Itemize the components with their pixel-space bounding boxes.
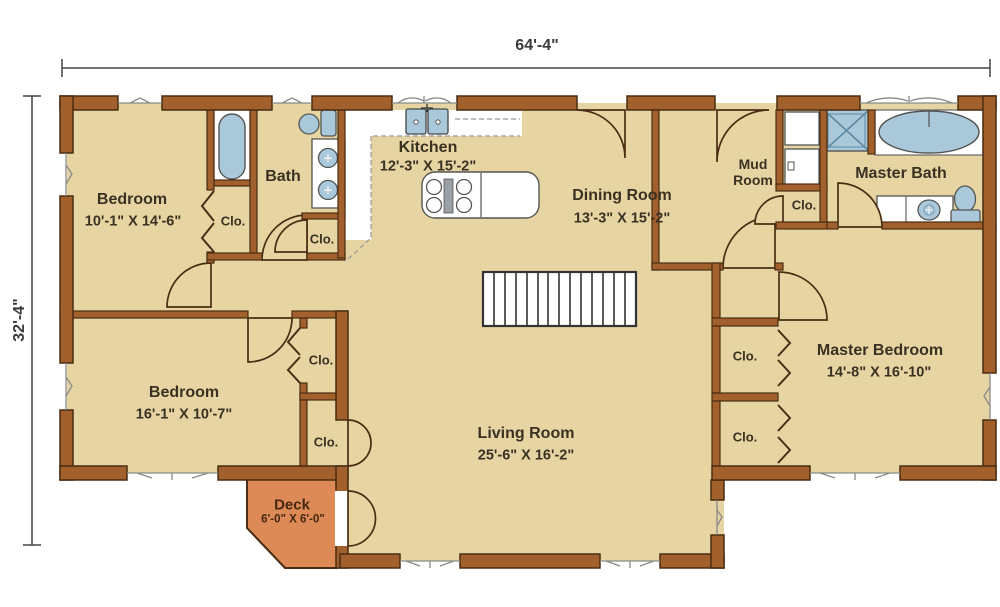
window-top-2 — [272, 98, 312, 103]
window-living-2 — [600, 561, 660, 568]
shower-icon — [824, 110, 869, 151]
height-dimension-label: 32'-4" — [11, 298, 29, 341]
stairs-icon — [483, 272, 636, 326]
width-dimension-label: 64'-4" — [515, 37, 558, 55]
living-room-size: 25'-6" X 16'-2" — [478, 448, 574, 465]
bathtub-icon — [214, 110, 250, 183]
master-closet2-label: Clo. — [733, 431, 758, 446]
bedroom2-size: 16'-1" X 10'-7" — [136, 407, 232, 424]
master-bedroom-name: Master Bedroom — [817, 342, 943, 360]
bedroom2-name: Bedroom — [149, 384, 219, 402]
bath-closet-label: Clo. — [310, 233, 335, 248]
bedroom1-name: Bedroom — [97, 191, 167, 209]
deck-size: 6'-0" X 6'-0" — [261, 513, 325, 526]
deck-name: Deck — [274, 496, 310, 513]
floor-plan-drawing — [0, 0, 1000, 607]
dining-room-size: 13'-3" X 15'-2" — [574, 211, 670, 228]
cooktop-island-icon — [422, 172, 539, 218]
living-room-name: Living Room — [478, 425, 575, 443]
garden-tub-icon — [875, 110, 983, 155]
window-top-1 — [118, 98, 162, 103]
floor-plan: 64'-4" 32'-4" Bedroom 10'-1" X 14'-6" Ba… — [0, 0, 1000, 607]
master-closet1-label: Clo. — [733, 350, 758, 365]
mud-closet-label: Clo. — [792, 199, 817, 214]
washer-icon — [785, 112, 819, 145]
dryer-icon — [785, 149, 819, 185]
mud-room-name: Mud Room — [727, 156, 779, 188]
coat-closet-label: Clo. — [314, 436, 339, 451]
bedroom1-size: 10'-1" X 14'-6" — [85, 214, 181, 231]
kitchen-name: Kitchen — [399, 139, 458, 157]
kitchen-size: 12'-3" X 15'-2" — [380, 159, 476, 176]
master-bedroom-size: 14'-8" X 16'-10" — [827, 365, 931, 382]
master-bath-name: Master Bath — [855, 165, 947, 183]
bath-name: Bath — [265, 168, 301, 186]
window-bedroom2 — [127, 473, 218, 480]
window-master-bath — [860, 96, 958, 103]
window-living-1 — [400, 561, 460, 568]
window-master-bedroom — [810, 473, 900, 480]
dining-room-name: Dining Room — [572, 187, 672, 205]
vanity-sink-icon — [877, 196, 953, 224]
bedroom1-closet-label: Clo. — [221, 215, 246, 230]
bedroom2-closet-label: Clo. — [309, 354, 334, 369]
window-kitchen — [392, 96, 457, 103]
